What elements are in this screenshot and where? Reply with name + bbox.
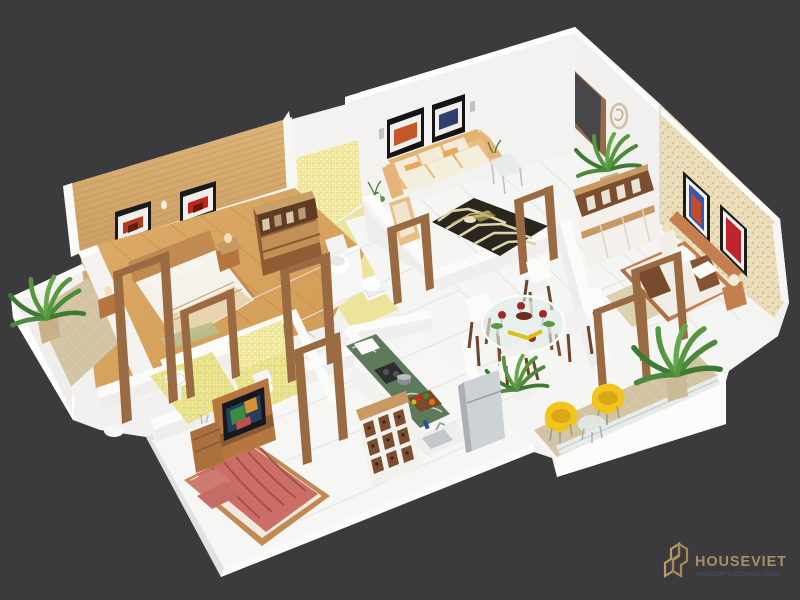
svg-text:NHADEP-XAYDUNG.COM: NHADEP-XAYDUNG.COM [696, 571, 780, 578]
svg-text:HOUSEVIET: HOUSEVIET [695, 554, 787, 570]
